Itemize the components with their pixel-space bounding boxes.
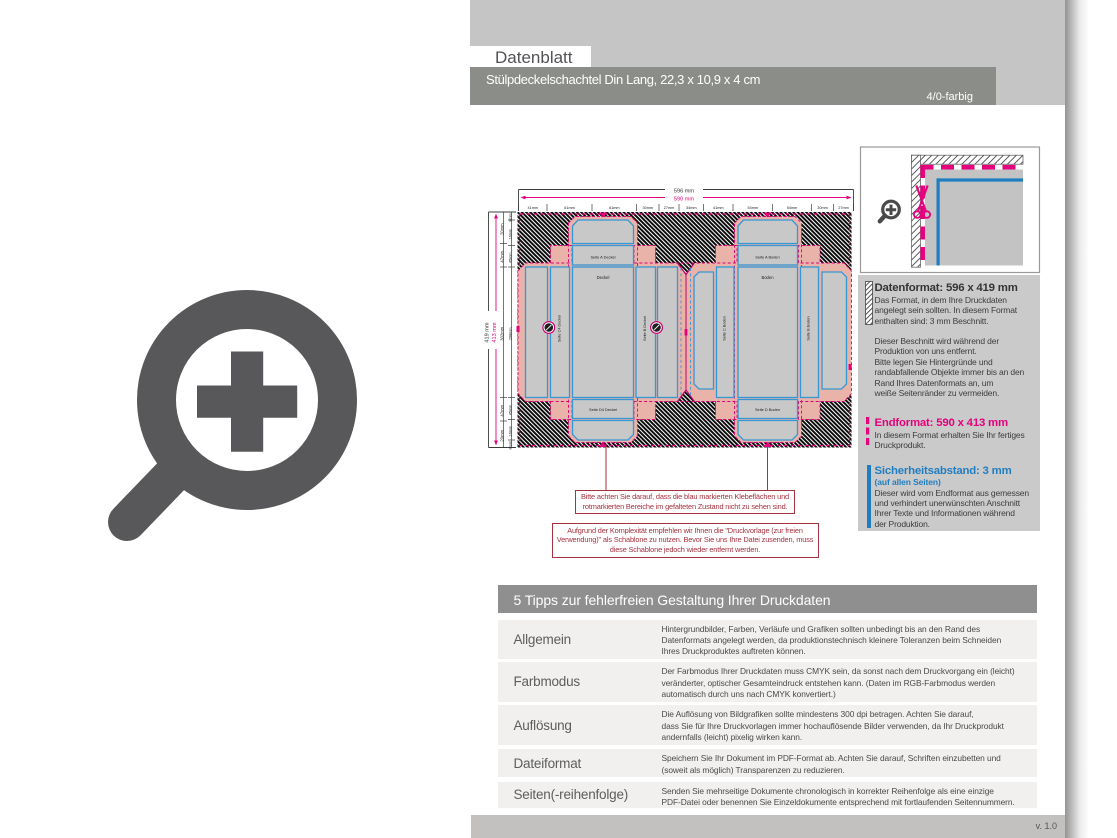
svg-text:61mm: 61mm [609, 206, 620, 210]
svg-text:Seite B Deckel: Seite B Deckel [643, 316, 647, 341]
svg-text:Seite B Boden: Seite B Boden [807, 316, 811, 340]
svg-text:27mm: 27mm [838, 206, 849, 210]
svg-text:47mm: 47mm [500, 250, 505, 262]
svg-text:20mm: 20mm [500, 429, 505, 441]
svg-text:413 mm: 413 mm [492, 322, 498, 343]
svg-text:45mm: 45mm [509, 405, 513, 416]
svg-text:Seite C4 Deckel: Seite C4 Deckel [558, 315, 562, 342]
svg-text:Seite C Boden: Seite C Boden [723, 316, 727, 341]
svg-text:30mm: 30mm [817, 206, 828, 210]
svg-text:54mm: 54mm [747, 206, 758, 210]
svg-text:41mm: 41mm [527, 206, 538, 210]
svg-text:Seite D4 Deckel: Seite D4 Deckel [589, 407, 617, 412]
svg-text:20mm: 20mm [500, 223, 505, 235]
svg-text:61mm: 61mm [564, 206, 575, 210]
svg-text:16mm: 16mm [509, 229, 513, 240]
svg-text:47mm: 47mm [500, 404, 505, 416]
svg-text:590 mm: 590 mm [674, 197, 695, 203]
svg-text:Boden: Boden [761, 275, 774, 280]
svg-text:Seite D Boden: Seite D Boden [755, 407, 780, 412]
svg-text:16mm: 16mm [509, 426, 513, 437]
svg-text:34mm: 34mm [686, 206, 697, 210]
svg-text:Seite A Deckel: Seite A Deckel [590, 255, 615, 260]
svg-text:41mm: 41mm [713, 206, 724, 210]
svg-text:298mm: 298mm [509, 327, 513, 340]
svg-text:54mm: 54mm [787, 206, 798, 210]
svg-text:45mm: 45mm [509, 252, 513, 263]
svg-text:8mm: 8mm [509, 441, 513, 449]
svg-text:419 mm: 419 mm [485, 322, 491, 343]
svg-text:Deckel: Deckel [597, 275, 610, 280]
svg-text:8mm: 8mm [509, 213, 513, 221]
svg-text:596 mm: 596 mm [674, 189, 695, 195]
svg-text:30mm: 30mm [642, 206, 653, 210]
svg-text:302mm: 302mm [500, 326, 505, 340]
svg-text:Seite A Boden: Seite A Boden [755, 255, 779, 260]
svg-text:27mm: 27mm [664, 206, 675, 210]
